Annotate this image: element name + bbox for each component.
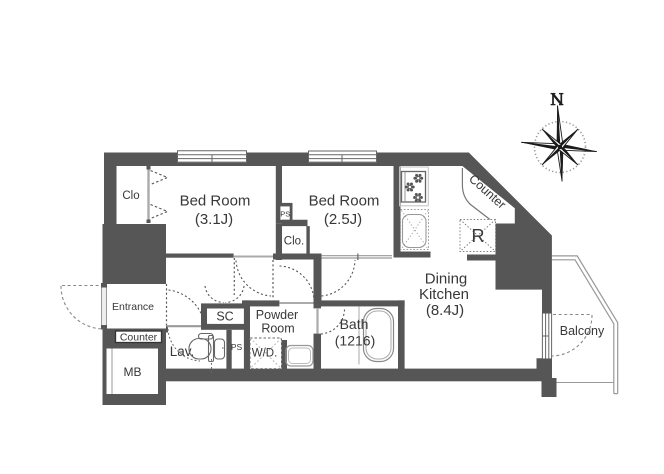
svg-text:Powder: Powder bbox=[256, 308, 298, 322]
svg-text:Counter: Counter bbox=[120, 331, 158, 343]
svg-text:Balcony: Balcony bbox=[560, 324, 605, 338]
svg-text:Clo.: Clo. bbox=[284, 236, 304, 248]
svg-text:Clo: Clo bbox=[122, 190, 139, 202]
svg-text:MB: MB bbox=[124, 365, 142, 379]
svg-text:PS: PS bbox=[280, 209, 290, 218]
svg-text:(1216): (1216) bbox=[335, 333, 375, 349]
svg-text:(3.1J): (3.1J) bbox=[195, 211, 233, 228]
svg-text:R: R bbox=[472, 226, 485, 246]
svg-text:(2.5J): (2.5J) bbox=[324, 211, 362, 228]
svg-text:Kitchen: Kitchen bbox=[419, 286, 469, 303]
svg-text:Bed Room: Bed Room bbox=[180, 193, 251, 210]
svg-text:Room: Room bbox=[261, 322, 294, 336]
svg-text:W/D.: W/D. bbox=[252, 348, 278, 360]
svg-text:SC: SC bbox=[216, 310, 233, 324]
svg-text:Bath: Bath bbox=[340, 316, 369, 332]
svg-text:Entrance: Entrance bbox=[112, 301, 154, 313]
svg-text:Bed Room: Bed Room bbox=[309, 193, 380, 210]
svg-text:Lav.: Lav. bbox=[170, 344, 195, 359]
svg-text:(8.4J): (8.4J) bbox=[426, 302, 464, 319]
svg-text:PS: PS bbox=[231, 342, 243, 352]
svg-text:Dining: Dining bbox=[425, 271, 468, 288]
